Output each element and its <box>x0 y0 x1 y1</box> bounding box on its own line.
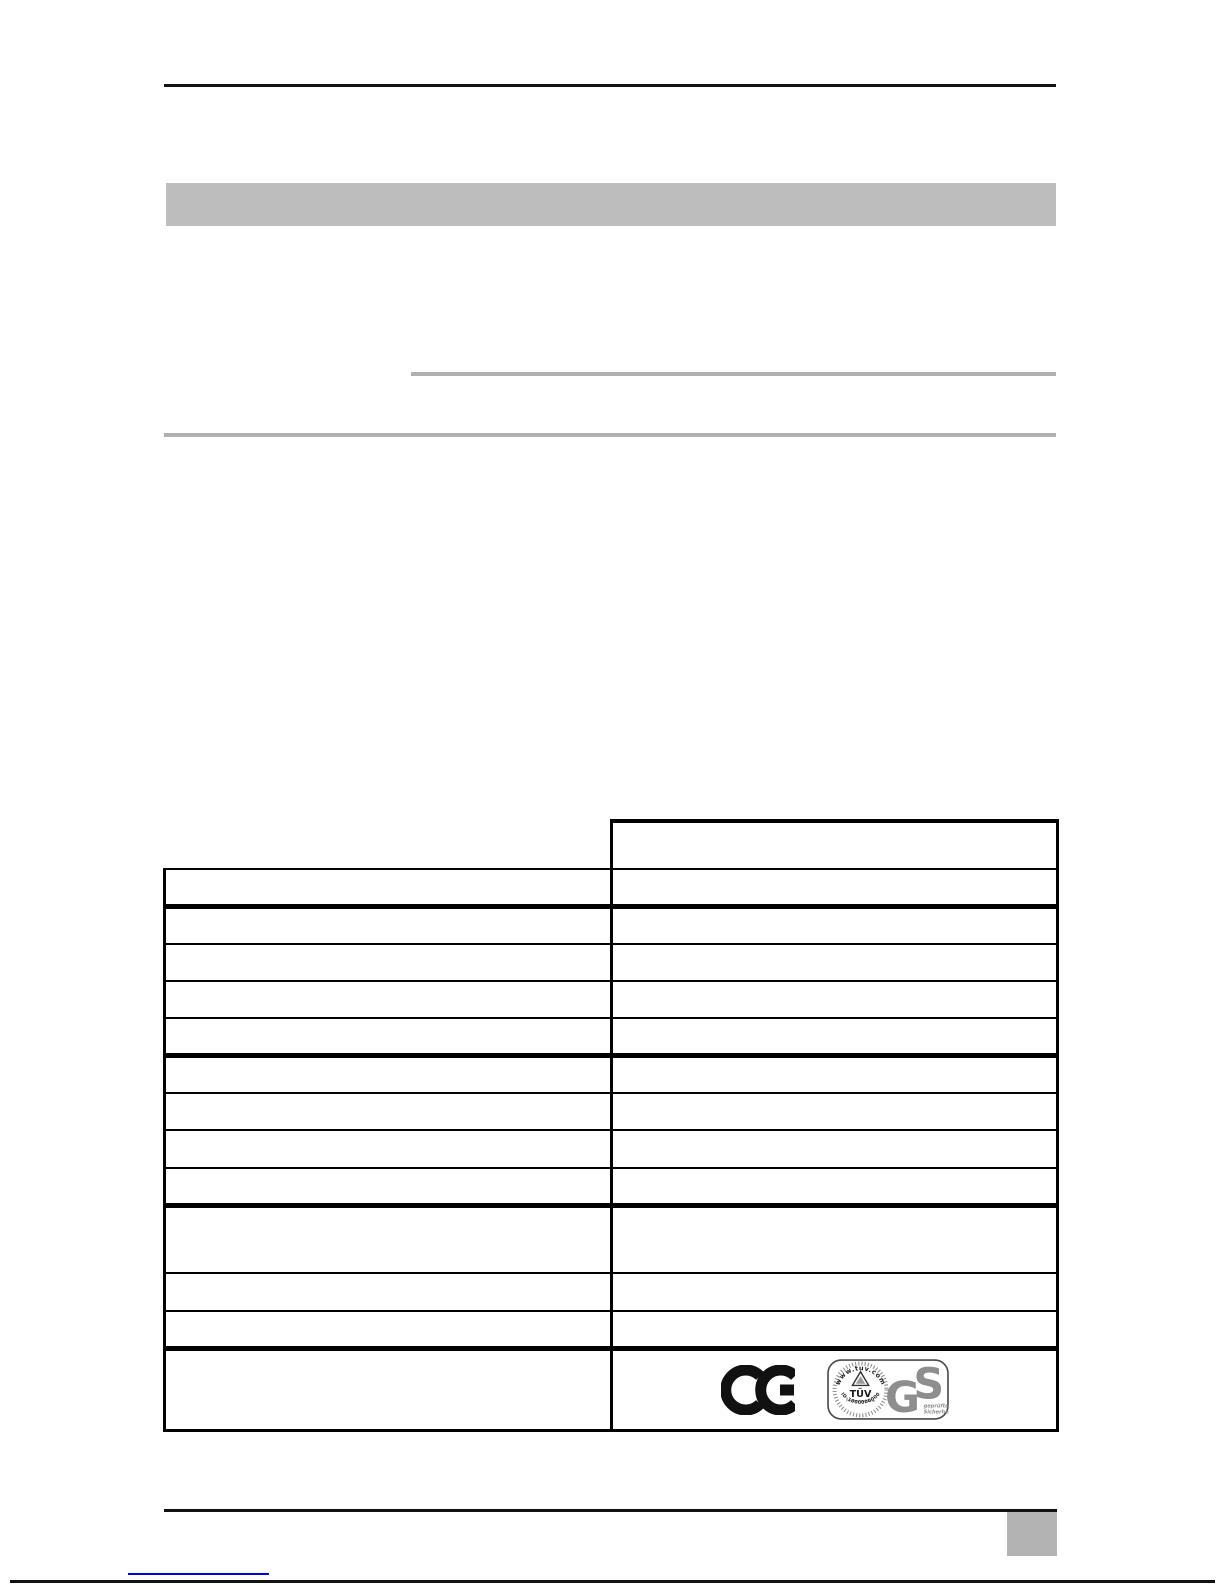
spec-label-cell <box>165 1348 612 1430</box>
table-row-certifications: www.tuv.com TÜV TÜV Rheinland Group ID-1… <box>165 1348 1058 1430</box>
certification-logos: www.tuv.com TÜV TÜV Rheinland Group ID-1… <box>613 1359 1056 1420</box>
spec-value-cell <box>612 1018 1058 1055</box>
table-row <box>165 906 1058 944</box>
table-row <box>165 1130 1058 1168</box>
table-row <box>165 1018 1058 1055</box>
table-row <box>165 869 1058 906</box>
footer-rule <box>164 1509 1057 1512</box>
spec-label-cell <box>165 1055 612 1093</box>
certifications-cell: www.tuv.com TÜV TÜV Rheinland Group ID-1… <box>612 1348 1058 1430</box>
spec-value-cell <box>612 1311 1058 1348</box>
section-heading-bar <box>166 183 1056 226</box>
spec-value-cell <box>612 1273 1058 1311</box>
gs-caption-line2: Sicherheit <box>923 1409 948 1415</box>
gs-letter-s: S <box>913 1360 944 1410</box>
spec-value-cell <box>612 906 1058 944</box>
table-row <box>165 1273 1058 1311</box>
page-edge-line <box>10 1580 1215 1583</box>
spec-value-cell <box>612 1093 1058 1130</box>
table-row <box>165 1168 1058 1205</box>
ce-mark-icon <box>721 1365 795 1415</box>
spec-label-cell <box>165 1205 612 1273</box>
table-row <box>165 1311 1058 1348</box>
table-header-row <box>165 821 1058 869</box>
table-header-ghost-cell <box>165 821 612 869</box>
spec-label-cell <box>165 1168 612 1205</box>
document-page: www.tuv.com TÜV TÜV Rheinland Group ID-1… <box>0 0 1225 1585</box>
spec-value-cell <box>612 1205 1058 1273</box>
spec-label-cell <box>165 1311 612 1348</box>
spec-label-cell <box>165 1130 612 1168</box>
spec-value-cell <box>612 869 1058 906</box>
header-top-rule <box>164 84 1056 87</box>
spec-label-cell <box>165 1273 612 1311</box>
spec-value-cell <box>612 1130 1058 1168</box>
table-row <box>165 1093 1058 1130</box>
spec-value-cell <box>612 1055 1058 1093</box>
page-number-marker <box>1007 1512 1057 1556</box>
spec-value-cell <box>612 944 1058 981</box>
table-row-tall <box>165 1205 1058 1273</box>
spec-value-cell <box>612 981 1058 1018</box>
indented-divider-rule <box>411 372 1056 376</box>
spec-label-cell <box>165 906 612 944</box>
spec-label-cell <box>165 944 612 981</box>
spec-label-cell <box>165 1018 612 1055</box>
spec-label-cell <box>165 981 612 1018</box>
tuv-gs-badge-icon: www.tuv.com TÜV TÜV Rheinland Group ID-1… <box>827 1359 949 1420</box>
table-row <box>165 981 1058 1018</box>
spec-value-cell <box>612 1168 1058 1205</box>
full-width-divider-rule <box>164 433 1056 437</box>
spec-table: www.tuv.com TÜV TÜV Rheinland Group ID-1… <box>163 819 1059 1432</box>
footer-link-underline[interactable] <box>128 1573 269 1575</box>
table-row <box>165 944 1058 981</box>
table-header-value-cell <box>612 821 1058 869</box>
spec-label-cell <box>165 1093 612 1130</box>
spec-label-cell <box>165 869 612 906</box>
table-row <box>165 1055 1058 1093</box>
